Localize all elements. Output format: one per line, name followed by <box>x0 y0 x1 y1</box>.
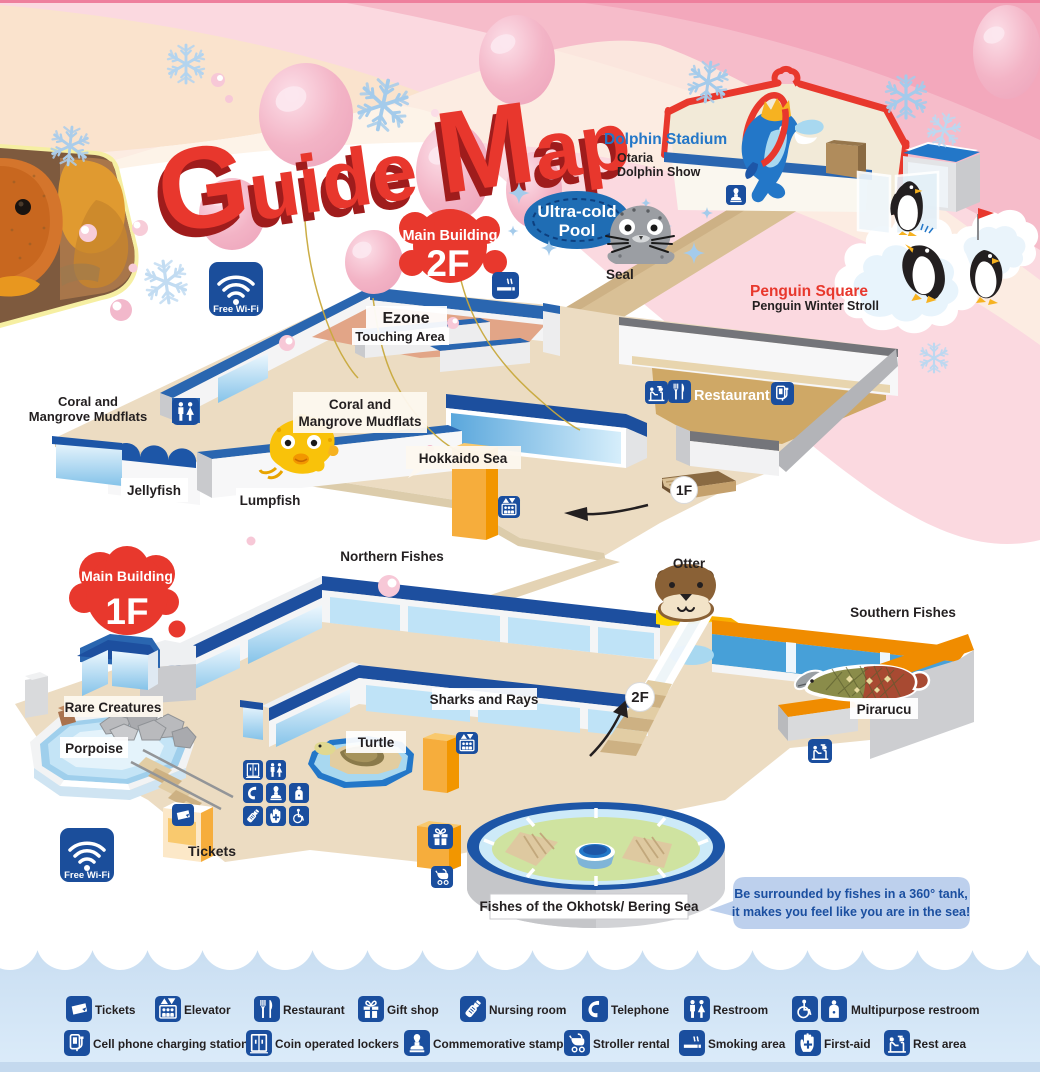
svg-text:1F: 1F <box>105 591 148 632</box>
svg-text:Tickets: Tickets <box>188 843 236 859</box>
svg-text:Elevator: Elevator <box>184 1003 231 1017</box>
svg-text:Rest area: Rest area <box>913 1037 967 1051</box>
svg-text:Be surrounded by fishes in a 3: Be surrounded by fishes in a 360° tank, <box>734 887 968 901</box>
svg-text:Coin operated lockers: Coin operated lockers <box>275 1037 399 1051</box>
svg-text:Otaria: Otaria <box>617 151 654 165</box>
svg-text:Smoking area: Smoking area <box>708 1037 786 1051</box>
svg-text:2F: 2F <box>426 243 469 284</box>
svg-text:2F: 2F <box>631 689 649 706</box>
svg-text:Seal: Seal <box>606 267 634 282</box>
svg-text:it makes you feel like you are: it makes you feel like you are in the se… <box>732 905 970 919</box>
svg-text:Free Wi-Fi: Free Wi-Fi <box>213 304 259 315</box>
svg-text:Jellyfish: Jellyfish <box>127 483 181 498</box>
svg-text:Restroom: Restroom <box>713 1003 768 1017</box>
svg-text:Multipurpose restroom: Multipurpose restroom <box>851 1003 979 1017</box>
svg-text:Stroller rental: Stroller rental <box>593 1037 670 1051</box>
svg-text:Restaurant: Restaurant <box>694 388 770 404</box>
svg-text:Fishes of the Okhotsk/ Bering: Fishes of the Okhotsk/ Bering Sea <box>479 899 699 914</box>
svg-text:Main Building: Main Building <box>402 228 497 244</box>
svg-text:Restaurant: Restaurant <box>283 1003 345 1017</box>
svg-text:Penguin Winter Stroll: Penguin Winter Stroll <box>752 299 879 313</box>
svg-text:Otter: Otter <box>673 556 706 571</box>
svg-text:Coral and: Coral and <box>58 394 118 409</box>
svg-text:Tickets: Tickets <box>95 1003 136 1017</box>
svg-text:Ultra-cold: Ultra-cold <box>537 202 616 221</box>
svg-text:First-aid: First-aid <box>824 1037 871 1051</box>
svg-text:Touching Area: Touching Area <box>355 329 445 344</box>
svg-text:Sharks and Rays: Sharks and Rays <box>430 692 539 707</box>
svg-text:Main Building: Main Building <box>81 568 173 584</box>
svg-text:Mangrove Mudflats: Mangrove Mudflats <box>29 409 147 424</box>
svg-text:Lumpfish: Lumpfish <box>240 493 301 508</box>
svg-text:Turtle: Turtle <box>358 735 395 750</box>
svg-text:Porpoise: Porpoise <box>65 741 123 756</box>
svg-text:Cell phone charging station: Cell phone charging station <box>93 1037 248 1051</box>
svg-text:Rare Creatures: Rare Creatures <box>65 700 162 715</box>
svg-text:Gift shop: Gift shop <box>387 1003 439 1017</box>
svg-text:Hokkaido Sea: Hokkaido Sea <box>419 451 508 466</box>
svg-text:Ezone: Ezone <box>382 310 429 327</box>
svg-text:Mangrove Mudflats: Mangrove Mudflats <box>298 414 421 429</box>
svg-text:Northern Fishes: Northern Fishes <box>340 549 444 564</box>
svg-text:Dolphin Show: Dolphin Show <box>617 165 701 179</box>
svg-text:Telephone: Telephone <box>611 1003 670 1017</box>
svg-text:Pool: Pool <box>559 221 596 240</box>
svg-text:Free Wi-Fi: Free Wi-Fi <box>64 870 110 881</box>
svg-text:Southern Fishes: Southern Fishes <box>850 605 956 620</box>
svg-text:1F: 1F <box>676 482 693 498</box>
svg-text:Nursing room: Nursing room <box>489 1003 566 1017</box>
svg-text:Coral and: Coral and <box>329 397 391 412</box>
svg-text:Pirarucu: Pirarucu <box>857 702 912 717</box>
svg-text:Dolphin Stadium: Dolphin Stadium <box>604 131 727 148</box>
svg-text:Commemorative stamp: Commemorative stamp <box>433 1037 563 1051</box>
svg-text:Penguin Square: Penguin Square <box>750 283 868 300</box>
